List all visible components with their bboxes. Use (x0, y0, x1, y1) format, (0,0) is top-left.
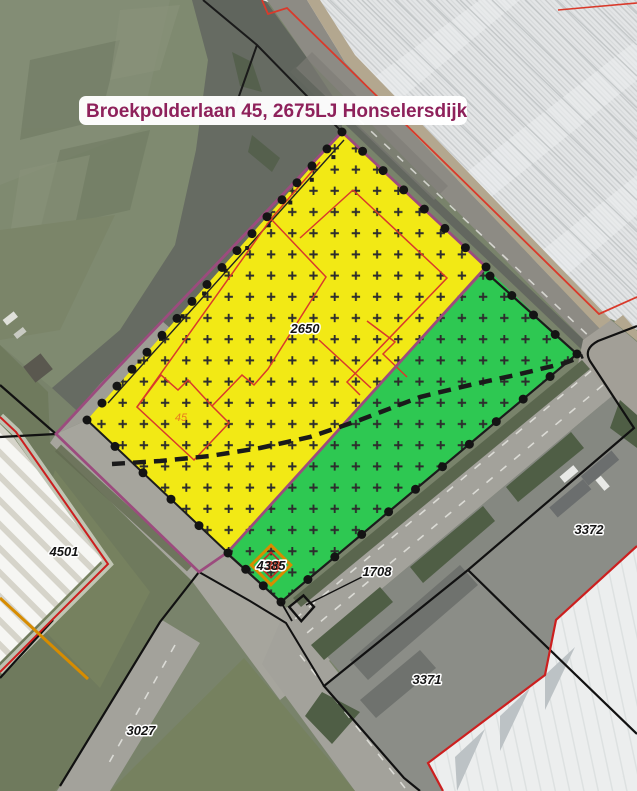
svg-text:Broekpolderlaan 45, 2675LJ Hon: Broekpolderlaan 45, 2675LJ Honselersdijk (86, 101, 468, 122)
svg-text:4501: 4501 (49, 544, 79, 559)
svg-text:3372: 3372 (575, 522, 605, 537)
svg-text:1708: 1708 (363, 564, 393, 579)
svg-text:3371: 3371 (413, 672, 442, 687)
svg-text:3027: 3027 (127, 723, 157, 738)
svg-text:4385: 4385 (256, 558, 287, 573)
svg-text:2650: 2650 (290, 321, 321, 336)
svg-text:45: 45 (175, 412, 188, 424)
